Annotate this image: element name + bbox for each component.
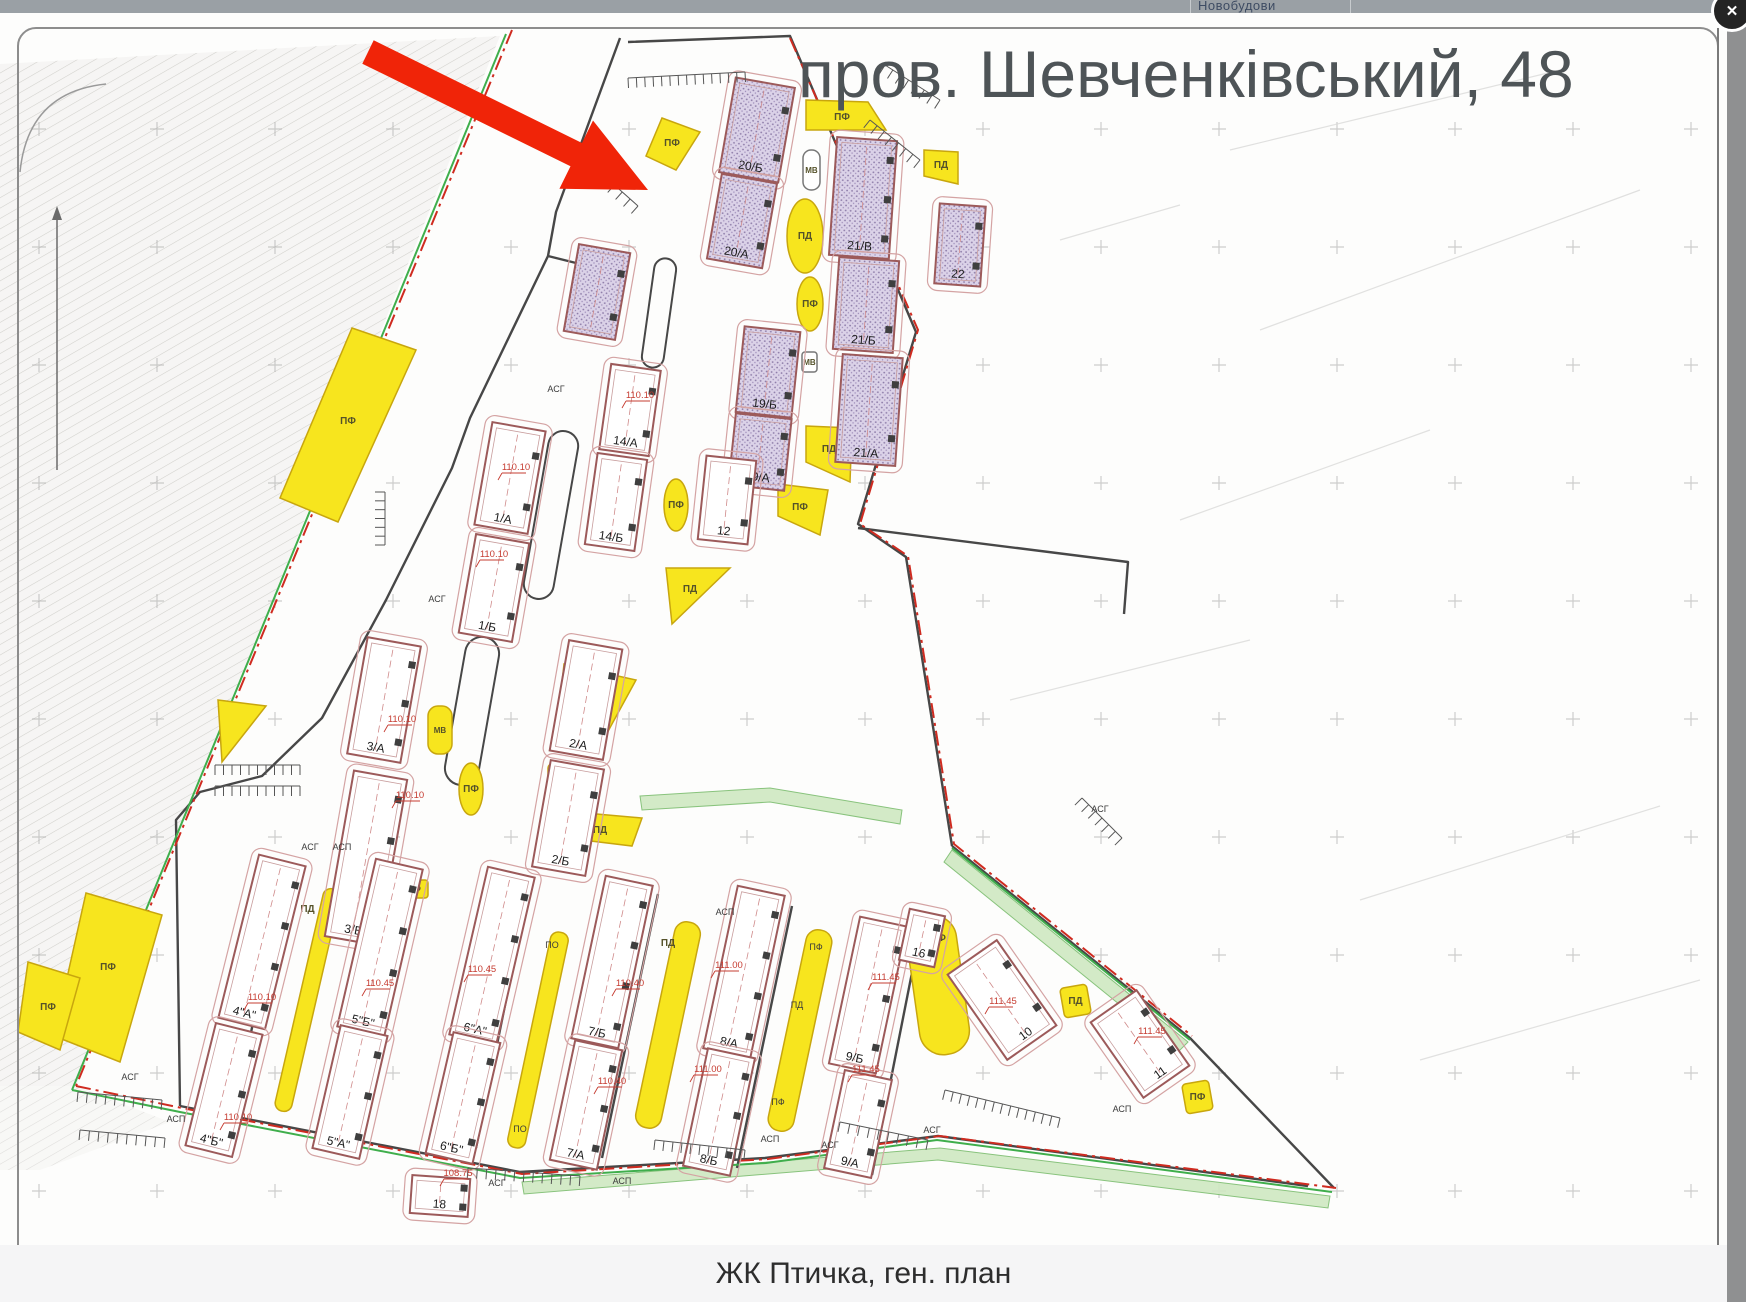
svg-text:18: 18 (432, 1197, 447, 1212)
area-ПД: ПД (787, 199, 823, 273)
map-label: АСП (1113, 1104, 1132, 1114)
caption-text: ЖК Птичка, ген. план (716, 1257, 1012, 1291)
svg-text:110.10: 110.10 (388, 714, 416, 725)
area-ПД: ПД (1060, 984, 1092, 1018)
lightbox-stage: Новобудови (0, 0, 1746, 1302)
svg-text:110.40: 110.40 (616, 978, 644, 989)
svg-text:111.00: 111.00 (694, 1064, 722, 1075)
area-МВ: МВ (803, 150, 820, 190)
caption-bar: ЖК Птичка, ген. план (0, 1245, 1727, 1302)
svg-text:ПФ: ПФ (100, 962, 116, 973)
svg-text:ПФ: ПФ (664, 138, 680, 149)
area-МВ: МВ (428, 706, 452, 754)
svg-text:110.45: 110.45 (468, 964, 496, 975)
map-label: АСГ (1091, 804, 1108, 814)
svg-text:111.45: 111.45 (989, 996, 1017, 1007)
area-ПФ: ПФ (459, 763, 483, 815)
page-background-strip (1727, 0, 1746, 1302)
svg-text:110.45: 110.45 (366, 978, 394, 989)
svg-text:ПД: ПД (1068, 996, 1082, 1007)
map-label: АСГ (821, 1140, 838, 1150)
map-label: АСГ (547, 384, 564, 394)
svg-text:ПД: ПД (934, 160, 948, 171)
map-label: АСП (333, 842, 352, 852)
svg-text:111.45: 111.45 (852, 1064, 880, 1075)
svg-text:110.40: 110.40 (598, 1076, 626, 1087)
map-label: АСГ (488, 1178, 505, 1188)
background-page-strip: Новобудови (0, 0, 1746, 13)
svg-text:МВ: МВ (803, 358, 816, 367)
map-label: АСГ (923, 1125, 940, 1135)
svg-text:110.10: 110.10 (224, 1112, 252, 1123)
map-label: АСП (716, 907, 735, 917)
map-label: АСП (613, 1176, 632, 1186)
svg-text:МВ: МВ (434, 726, 447, 735)
map-label: ПФ (809, 942, 822, 952)
map-label: ПО (545, 940, 558, 950)
plan-title: пров. Шевченківський, 48 (798, 37, 1574, 111)
area-ПФ: ПФ (1182, 1080, 1214, 1114)
svg-text:110.10: 110.10 (248, 992, 276, 1003)
site-plan-image[interactable]: ПФПФПФПДПФПДПДПФПФПДМВПФПФПФПДПФПФПФПФПД… (0, 13, 1727, 1245)
svg-text:ПФ: ПФ (1190, 1092, 1206, 1103)
svg-text:21/А: 21/А (853, 445, 879, 461)
area-ПФ: ПФ (664, 479, 688, 531)
svg-text:22: 22 (951, 266, 966, 281)
svg-text:МВ: МВ (805, 166, 818, 175)
svg-text:111.45: 111.45 (1138, 1026, 1166, 1037)
map-label: АСГ (301, 842, 318, 852)
svg-text:110.10: 110.10 (502, 462, 530, 473)
svg-text:ПФ: ПФ (40, 1002, 56, 1013)
svg-text:ПД: ПД (798, 231, 812, 242)
svg-text:110.10: 110.10 (396, 790, 424, 801)
svg-text:ПД: ПД (661, 938, 675, 949)
svg-text:ПФ: ПФ (792, 502, 808, 513)
svg-text:ПФ: ПФ (668, 500, 684, 511)
svg-text:110.10: 110.10 (626, 390, 654, 401)
svg-text:ПФ: ПФ (463, 784, 479, 795)
map-label: АСП (761, 1134, 780, 1144)
svg-text:ПФ: ПФ (340, 416, 356, 427)
svg-text:12: 12 (716, 523, 731, 538)
map-label: АСГ (428, 594, 445, 604)
svg-text:ПФ: ПФ (834, 112, 850, 123)
svg-text:ПФ: ПФ (802, 299, 818, 310)
map-label: ПО (513, 1124, 526, 1134)
map-label: ПД (791, 1000, 804, 1010)
map-label: АСГ (121, 1072, 138, 1082)
map-label: ПФ (771, 1097, 784, 1107)
svg-text:111.45: 111.45 (872, 972, 900, 983)
map-label: АСП (167, 1114, 186, 1124)
background-page-text: Новобудови (1198, 0, 1276, 13)
svg-text:ПД: ПД (683, 584, 697, 595)
background-page-divider (1190, 0, 1191, 13)
area-ПФ: ПФ (797, 277, 823, 331)
background-page-divider (1350, 0, 1351, 13)
svg-text:110.10: 110.10 (480, 549, 508, 560)
svg-text:111.00: 111.00 (715, 960, 743, 971)
svg-text:21/Б: 21/Б (851, 332, 877, 348)
svg-text:108.75: 108.75 (443, 1168, 472, 1179)
